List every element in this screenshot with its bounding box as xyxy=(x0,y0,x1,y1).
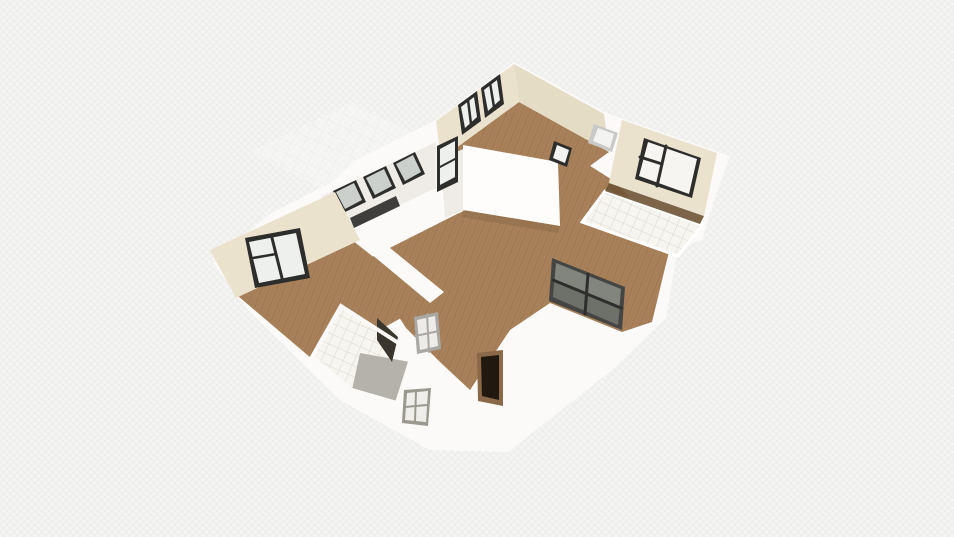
south-window-mullion-v xyxy=(415,392,416,421)
floorplan-3d-view[interactable] xyxy=(0,0,954,537)
floorplan-app-viewport xyxy=(0,0,954,537)
corridor-door-panel xyxy=(481,355,499,400)
floorplan-scene xyxy=(0,0,954,537)
